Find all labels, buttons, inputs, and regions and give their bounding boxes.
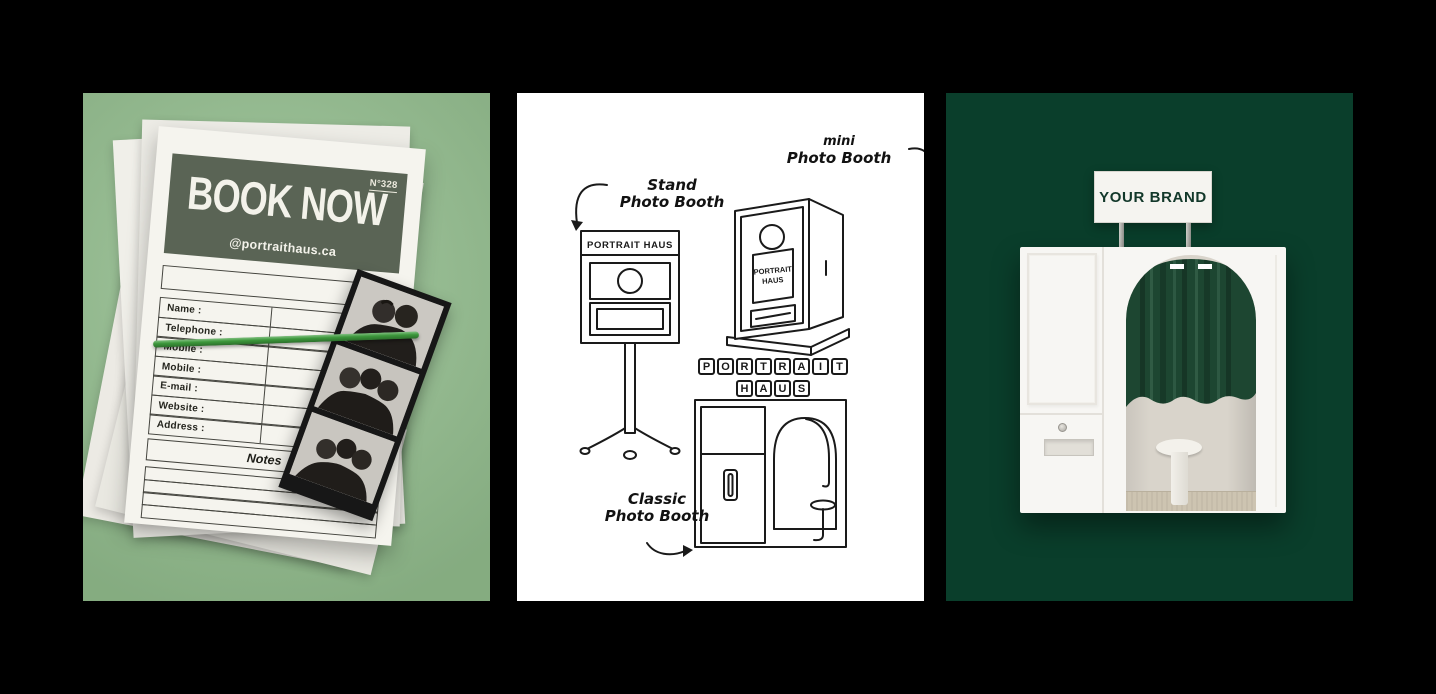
curved-arrow-icon	[905, 143, 924, 199]
stand-booth-label: Stand Photo Booth	[607, 177, 737, 212]
form-header: N°328 BOOK NOW @portraithaus.ca	[164, 153, 408, 273]
booth-side-cabinet	[1020, 247, 1104, 513]
curtain-grommet	[1198, 264, 1212, 269]
curved-arrow-icon	[567, 179, 611, 235]
letter-tile: O	[717, 358, 734, 375]
stool-leg	[1171, 452, 1188, 505]
photo-booth-body	[1020, 247, 1286, 513]
curtain	[1126, 255, 1256, 411]
letter-tile: S	[793, 380, 810, 397]
classic-photo-booth-drawing	[693, 398, 851, 550]
sign-post	[1119, 223, 1124, 249]
curtain-grommet	[1170, 264, 1184, 269]
mini-booth-label: mini Photo Booth	[769, 135, 909, 167]
classic-booth-label: Classic Photo Booth	[597, 491, 717, 526]
stand-booth-title: PORTRAIT HAUS	[587, 240, 673, 251]
letter-tiles-row2: H A U S	[736, 380, 810, 397]
letter-tile: A	[755, 380, 772, 397]
curved-arrow-icon	[643, 539, 697, 563]
booking-form-photo-panel: N°328 BOOK NOW @portraithaus.ca Name : T…	[83, 93, 490, 601]
stand-photo-booth-drawing: PORTRAIT HAUS	[575, 229, 685, 461]
sign-post	[1186, 223, 1191, 249]
classic-label-line1: Classic	[597, 491, 717, 508]
letter-tiles-row1: P O R T R A I T	[698, 358, 848, 375]
curtain-fabric	[1126, 259, 1256, 411]
website-handle: @portraithaus.ca	[165, 230, 401, 265]
booth-floor	[1126, 491, 1256, 511]
lock-icon	[1058, 423, 1067, 432]
letter-tile: H	[736, 380, 753, 397]
letter-tile: U	[774, 380, 791, 397]
your-brand-sign: YOUR BRAND	[1094, 171, 1212, 223]
booth-arch-opening	[1126, 255, 1256, 511]
mini-label-line2: Photo Booth	[769, 150, 909, 167]
booth-right-seam	[1275, 255, 1277, 507]
collage-stage: N°328 BOOK NOW @portraithaus.ca Name : T…	[0, 0, 1436, 694]
letter-tile: R	[736, 358, 753, 375]
mini-photo-booth-drawing: PORTRAIT HAUS	[723, 185, 858, 357]
mini-label-line1: mini	[769, 135, 909, 150]
sign-text: YOUR BRAND	[1099, 189, 1207, 206]
cabinet-upper-panel	[1027, 253, 1097, 405]
letter-tile: I	[812, 358, 829, 375]
classic-label-line2: Photo Booth	[597, 508, 717, 525]
letter-tile: T	[831, 358, 848, 375]
cabinet-divider	[1020, 413, 1104, 415]
branded-booth-render-panel: YOUR BRAND	[946, 93, 1353, 601]
letter-tile: P	[698, 358, 715, 375]
print-dispenser-slot	[1044, 439, 1094, 456]
booth-illustration-panel: Stand Photo Booth PORTRAIT HAUS mini	[517, 93, 924, 601]
letter-tile: R	[774, 358, 791, 375]
letter-tile: T	[755, 358, 772, 375]
form-title: BOOK NOW	[173, 170, 400, 236]
stand-label-line2: Photo Booth	[607, 194, 737, 211]
mini-screen-line2: HAUS	[762, 275, 784, 286]
letter-tile: A	[793, 358, 810, 375]
stand-label-line1: Stand	[607, 177, 737, 194]
